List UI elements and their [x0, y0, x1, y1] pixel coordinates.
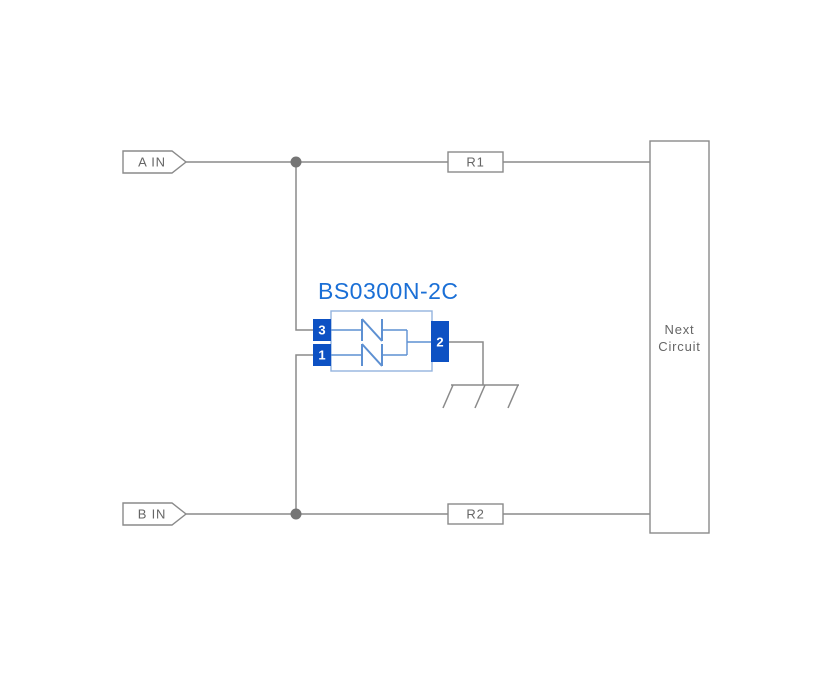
- wire-pin2-to-ground: [449, 342, 483, 385]
- junction-dot-a: [291, 157, 302, 168]
- ground-hatch-2: [475, 385, 485, 408]
- input-b-label: B IN: [138, 507, 166, 522]
- circuit-diagram: A IN B IN R1 R2 Next Circuit BS0300N-2C: [0, 0, 832, 675]
- part-number-label: BS0300N-2C: [318, 278, 459, 304]
- wire-bin-junction-to-pin1: [296, 355, 313, 514]
- pin1-label: 1: [318, 348, 325, 363]
- junction-dot-b: [291, 509, 302, 520]
- ground-hatch-3: [508, 385, 518, 408]
- input-a-label: A IN: [138, 155, 166, 170]
- resistor-r2-label: R2: [466, 507, 484, 522]
- next-circuit-box: [650, 141, 709, 533]
- next-circuit-label-line1: Next: [665, 322, 695, 337]
- pin2-label: 2: [436, 335, 443, 350]
- wire-ain-junction-to-pin3: [296, 162, 313, 330]
- pin3-label: 3: [318, 323, 325, 338]
- resistor-r1-label: R1: [466, 155, 484, 170]
- ground-symbol: [443, 385, 519, 408]
- schematic-canvas: A IN B IN R1 R2 Next Circuit BS0300N-2C: [0, 0, 832, 675]
- ground-hatch-1: [443, 385, 453, 408]
- next-circuit-label-line2: Circuit: [658, 339, 700, 354]
